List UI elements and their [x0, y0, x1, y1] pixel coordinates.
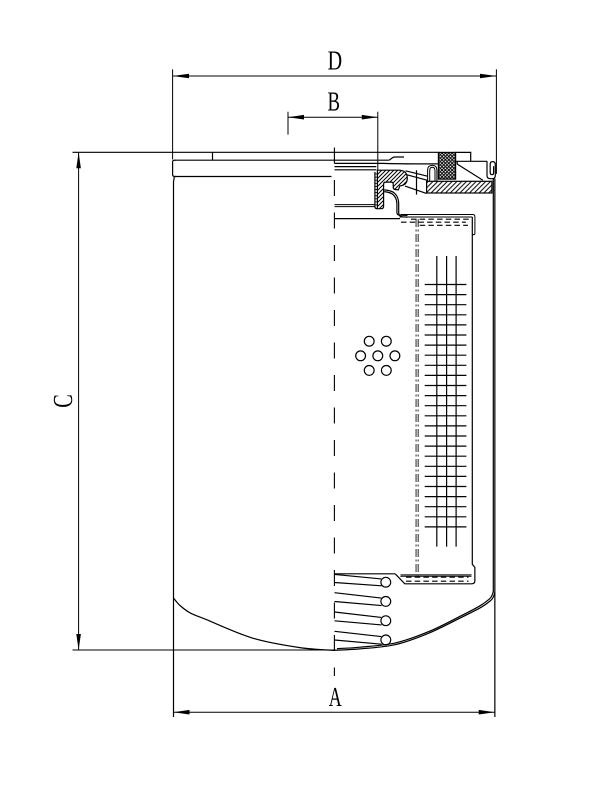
svg-text:D: D — [328, 45, 343, 76]
svg-text:C: C — [47, 394, 78, 408]
svg-text:B: B — [327, 86, 340, 117]
svg-text:A: A — [329, 681, 342, 712]
